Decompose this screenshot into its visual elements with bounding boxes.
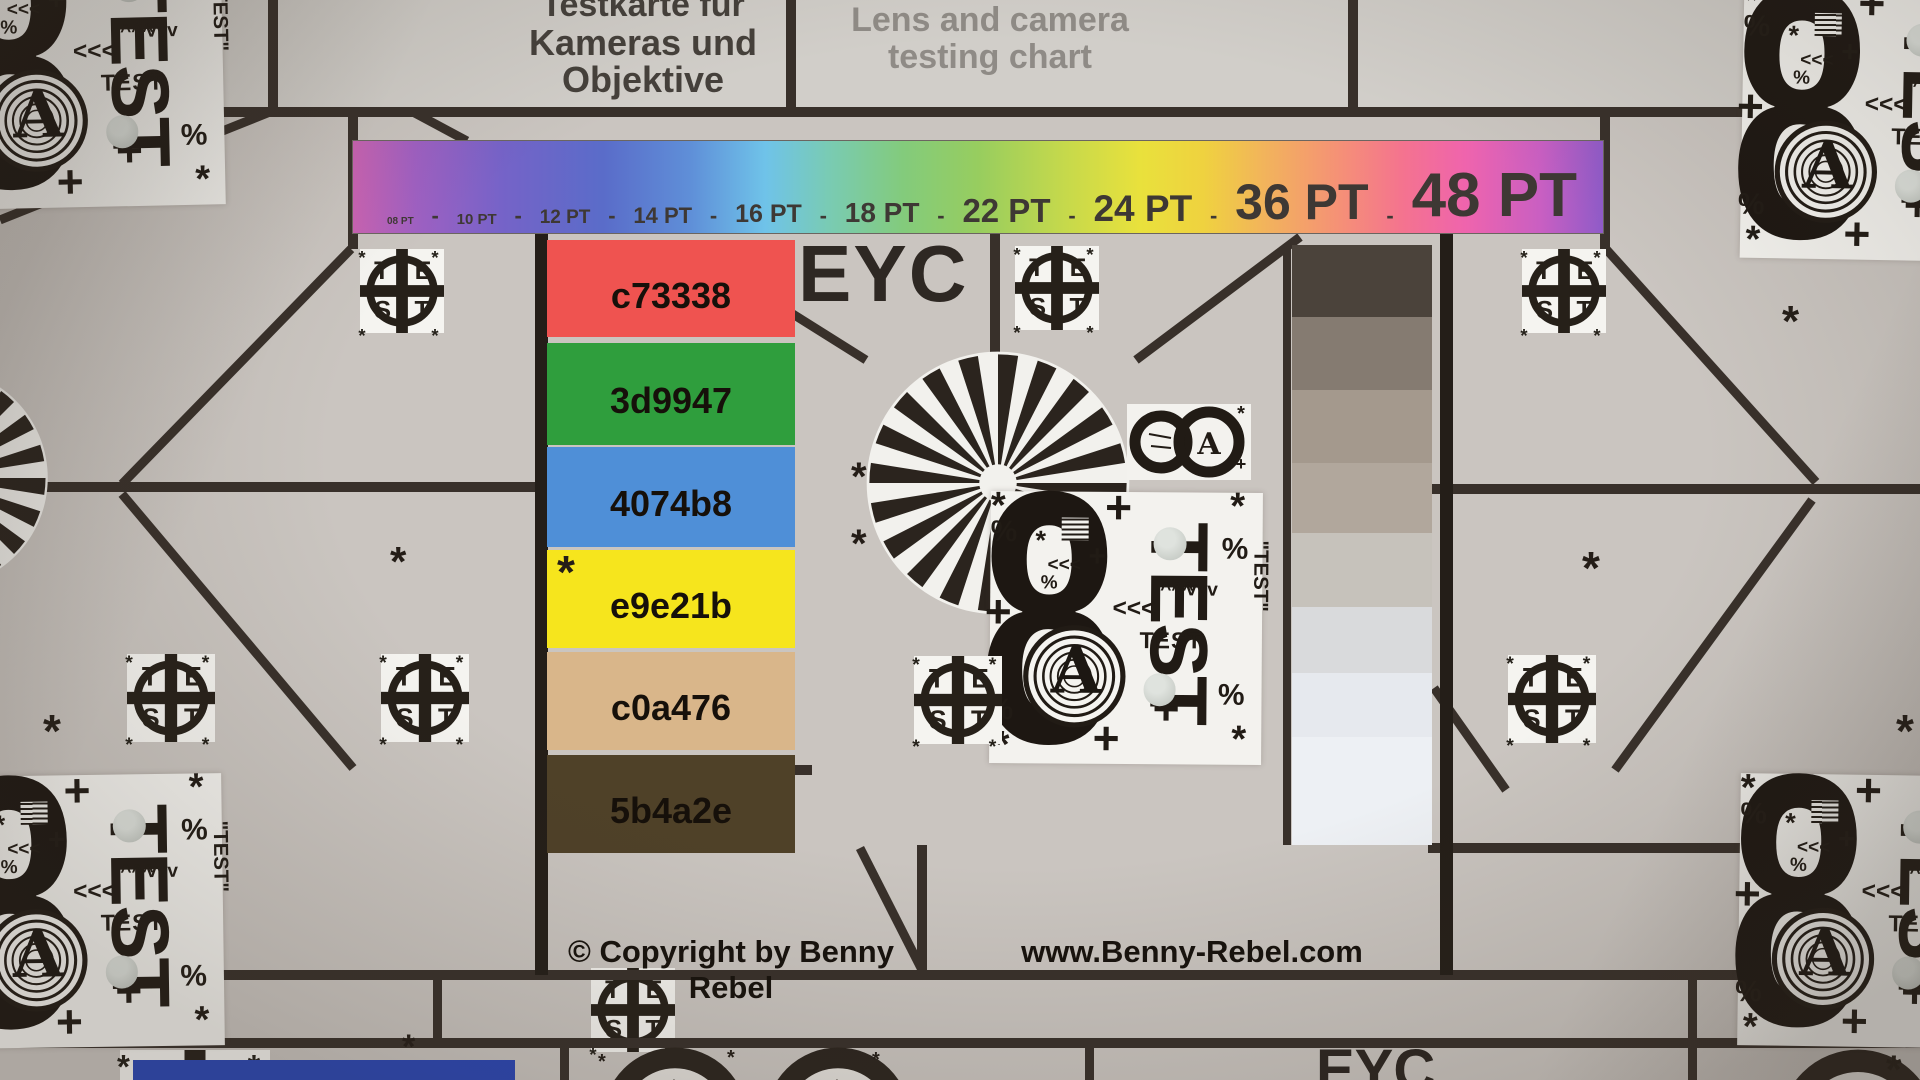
- tiny-hatch-lines: [1811, 800, 1839, 823]
- scatter-asterisk: *: [851, 524, 867, 564]
- test-circle-marker: T E S T ****: [127, 654, 215, 742]
- corner-asterisk: *: [188, 768, 203, 806]
- percent-sign: %: [180, 961, 207, 991]
- svg-text:T: T: [184, 703, 200, 733]
- resolution-target-8: 8 ATESTTEST"TEST"<<<*%+++++%%%%****<<<^^…: [1737, 773, 1920, 1049]
- grid-line-vertical: [1085, 1038, 1094, 1080]
- test-circle-marker: T E S T ****: [1015, 246, 1099, 330]
- plus-sign: +: [1105, 484, 1132, 530]
- small-test-word: TEST: [1139, 629, 1202, 653]
- scatter-asterisk: *: [1782, 300, 1799, 344]
- marker-corner-asterisk: *: [456, 736, 464, 755]
- font-size-label: 10 PT: [457, 212, 497, 227]
- color-swatch: 3d9947: [547, 343, 795, 445]
- tiny-percent: %: [1041, 573, 1058, 592]
- marker-corner-asterisk: *: [379, 654, 387, 673]
- font-size-label: 22 PT: [962, 194, 1050, 227]
- svg-text:S: S: [1523, 704, 1541, 734]
- color-swatch: c73338: [547, 240, 795, 337]
- plus-sign: +: [1858, 0, 1886, 26]
- tiny-hatch-lines: [1061, 517, 1088, 540]
- marker-corner-asterisk: *: [125, 736, 133, 755]
- scatter-asterisk: *: [390, 541, 406, 583]
- marker-corner-asterisk: *: [1520, 249, 1527, 267]
- website-text: www.Benny-Rebel.com: [992, 934, 1392, 970]
- marker-corner-asterisk: *: [117, 1050, 130, 1080]
- corner-asterisk: *: [1744, 0, 1759, 20]
- small-test-word: TEST: [101, 71, 164, 95]
- svg-text:T: T: [1029, 254, 1045, 282]
- marker-corner-asterisk: *: [431, 327, 438, 345]
- font-size-label: 12 PT: [540, 208, 591, 227]
- marker-corner-asterisk: *: [1593, 327, 1600, 345]
- grid-line-horizontal: [0, 970, 1920, 980]
- percent-sign: %: [181, 815, 208, 845]
- svg-text:E: E: [1070, 254, 1087, 282]
- corner-asterisk: *: [1743, 1008, 1758, 1046]
- svg-text:E: E: [1565, 663, 1583, 693]
- gray-dot: [1154, 528, 1187, 561]
- siemens-star: [0, 366, 50, 590]
- grid-line-vertical: [786, 0, 796, 110]
- test-circle-marker: T E S T ****: [1508, 655, 1596, 743]
- left-arrows: <<<: [1861, 880, 1904, 905]
- copyright-text: © Copyright by Benny Rebel: [531, 934, 931, 1006]
- tiny-asterisk: *: [1785, 809, 1796, 836]
- grayscale-step: [1292, 463, 1432, 533]
- grid-line-horizontal: [0, 482, 540, 492]
- swatch-hex-label: 5b4a2e: [610, 776, 732, 832]
- marker-corner-asterisk: *: [358, 327, 365, 345]
- down-chevrons: vvv: [146, 862, 178, 881]
- percent-sign: %: [1222, 535, 1249, 565]
- percent-sign: %: [1218, 680, 1245, 710]
- tiny-percent: %: [0, 18, 17, 37]
- marker-corner-asterisk: *: [912, 656, 920, 675]
- svg-text:S: S: [1029, 294, 1046, 322]
- font-size-label: 48 PT: [1412, 165, 1577, 227]
- gray-dot: [105, 955, 138, 988]
- gray-dot: [1894, 169, 1920, 202]
- color-swatch: 4074b8: [547, 447, 795, 547]
- tiny-hatch-lines: [20, 801, 48, 824]
- gray-dot: [1892, 956, 1920, 989]
- svg-text:A: A: [1196, 427, 1221, 462]
- plus-sign: +: [1843, 210, 1871, 257]
- scatter-asterisk: *: [1886, 1050, 1902, 1080]
- svg-text:S: S: [929, 705, 947, 735]
- left-arrows: <<<: [1865, 92, 1908, 117]
- tiny-plus: +: [48, 826, 66, 856]
- svg-text:T: T: [414, 297, 430, 325]
- corner-asterisk: *: [194, 1002, 209, 1040]
- font-size-separator: -: [820, 205, 827, 227]
- test-circle-marker: T E S T ****: [914, 656, 1002, 744]
- swatch-hex-label: 3d9947: [610, 366, 732, 422]
- tiny-percent: %: [1793, 68, 1810, 87]
- font-size-separator: -: [515, 205, 522, 227]
- eyc-label-partial: EYC: [1316, 1037, 1435, 1080]
- percent-sign: %: [180, 0, 207, 5]
- font-size-label: 36 PT: [1235, 177, 1368, 227]
- scatter-asterisk: *: [598, 1052, 606, 1072]
- test-circle-marker: T E S T ****: [381, 654, 469, 742]
- svg-text:T: T: [438, 703, 454, 733]
- grid-line-horizontal: [0, 107, 1920, 117]
- font-size-separator: -: [1210, 205, 1217, 227]
- eyc-label: EYC: [798, 228, 969, 320]
- scatter-asterisk: *: [402, 1030, 415, 1064]
- grayscale-step: [1292, 737, 1432, 845]
- ring-letter-a: A: [1799, 918, 1851, 990]
- font-size-separator: -: [937, 205, 944, 227]
- down-chevrons: vvv: [1186, 581, 1218, 600]
- grid-line-vertical: [1283, 245, 1291, 845]
- plus-sign: +: [1092, 715, 1119, 761]
- test-circle-marker: T E S T ****: [1522, 249, 1606, 333]
- tiny-plus: +: [1838, 825, 1856, 855]
- grayscale-step: [1292, 533, 1432, 607]
- marker-corner-asterisk: *: [1506, 655, 1514, 674]
- svg-text:T: T: [1576, 297, 1592, 325]
- ring-letter-a: A: [12, 919, 64, 991]
- plus-sign: +: [1733, 870, 1761, 917]
- font-size-separator: -: [432, 205, 439, 227]
- tiny-percent: %: [1, 858, 18, 877]
- up-chevrons: ^^^: [1912, 77, 1920, 97]
- grid-line-vertical: [1688, 975, 1697, 1080]
- svg-text:S: S: [374, 297, 391, 325]
- gray-dot: [113, 810, 146, 843]
- svg-text:S: S: [1536, 297, 1553, 325]
- svg-text:E: E: [415, 257, 432, 285]
- plus-sign: +: [56, 998, 84, 1045]
- plus-sign: +: [985, 588, 1012, 634]
- plus-sign: +: [1855, 767, 1883, 814]
- svg-text:T: T: [374, 257, 390, 285]
- grid-line-vertical: [560, 1038, 569, 1080]
- ring-letter-a: A: [1051, 636, 1102, 708]
- quoted-test-word: "TEST": [1250, 541, 1271, 613]
- marker-corner-asterisk: *: [125, 654, 133, 673]
- svg-text:T: T: [971, 705, 987, 735]
- quoted-test-word: "TEST": [209, 0, 231, 52]
- corner-asterisk: *: [1230, 487, 1245, 525]
- svg-text:T: T: [1523, 663, 1539, 693]
- font-size-gradient-bar: 08 PT-10 PT-12 PT-14 PT-16 PT-18 PT-22 P…: [352, 140, 1604, 234]
- marker-corner-asterisk: *: [1520, 327, 1527, 345]
- svg-text:E: E: [438, 662, 456, 692]
- grid-line-vertical: [990, 233, 1000, 357]
- grid-line-vertical: [1348, 0, 1358, 110]
- partial-ring-circle: [764, 1046, 912, 1080]
- svg-text:T: T: [1565, 704, 1581, 734]
- marker-corner-asterisk: *: [1086, 246, 1093, 264]
- left-arrows: <<<: [1112, 597, 1155, 622]
- resolution-target-8: 8 ATESTTEST"TEST"<<<*%+++++%%%%****<<<^^…: [0, 773, 225, 1049]
- marker-corner-asterisk: *: [431, 249, 438, 267]
- scatter-asterisk: *: [1896, 708, 1914, 754]
- font-size-label: 18 PT: [845, 199, 920, 227]
- grid-line-vertical: [433, 975, 442, 1042]
- percent-sign: %: [1738, 190, 1765, 220]
- resolution-target-8: 8 ATESTTEST"TEST"<<<*%+++++%%%%****<<<^^…: [1740, 0, 1920, 262]
- resolution-target-8: 8 ATESTTEST"TEST"<<<*%+++++%%%%****<<<^^…: [989, 491, 1263, 765]
- percent-sign: %: [1735, 977, 1762, 1007]
- svg-text:S: S: [142, 703, 160, 733]
- scatter-asterisk: *: [1582, 545, 1600, 591]
- small-test-word: TEST: [1888, 913, 1920, 937]
- color-swatch: e9e21b: [547, 550, 795, 648]
- plus-sign: +: [63, 767, 91, 814]
- down-chevrons: vvv: [146, 21, 178, 41]
- corner-asterisk: *: [1740, 769, 1755, 807]
- quoted-test-word: "TEST": [209, 821, 230, 893]
- marker-corner-asterisk: *: [1013, 246, 1020, 264]
- marker-corner-asterisk: *: [989, 738, 997, 757]
- marker-corner-asterisk: *: [1013, 324, 1020, 342]
- scatter-asterisk: *: [43, 708, 61, 754]
- color-swatch: 5b4a2e: [547, 755, 795, 853]
- svg-text:S: S: [396, 703, 414, 733]
- svg-text:T: T: [1536, 257, 1552, 285]
- svg-text:+: +: [1236, 454, 1247, 474]
- siemens-star-graphic: [0, 366, 50, 590]
- marker-corner-asterisk: *: [1086, 324, 1093, 342]
- marker-corner-asterisk: *: [202, 736, 210, 755]
- marker-corner-asterisk: *: [912, 738, 920, 757]
- marker-corner-asterisk: *: [379, 736, 387, 755]
- small-test-word: TEST: [1891, 126, 1920, 150]
- marker-corner-asterisk: *: [1583, 655, 1591, 674]
- ring-letter-a: A: [12, 80, 64, 153]
- tiny-asterisk: *: [1788, 22, 1799, 49]
- grayscale-step: [1292, 607, 1432, 673]
- grid-line-vertical: [1440, 233, 1453, 975]
- marker-corner-asterisk: *: [1583, 737, 1591, 756]
- camera-test-chart-photo: Testkarte für Kameras und Objektive Lens…: [0, 0, 1920, 1080]
- marker-corner-asterisk: *: [1506, 737, 1514, 756]
- svg-text:T: T: [142, 662, 158, 692]
- left-arrows: <<<: [73, 39, 116, 64]
- grayscale-step: [1292, 317, 1432, 390]
- tiny-percent: %: [1790, 855, 1807, 874]
- scatter-asterisk: *: [851, 457, 867, 497]
- gray-dot: [1143, 673, 1176, 706]
- corner-asterisk: *: [1231, 721, 1246, 759]
- plus-sign: +: [1736, 82, 1764, 129]
- resolution-target-8: 8 ATESTTEST"TEST"<<<*%+++++%%%%****<<<^^…: [0, 0, 226, 210]
- left-arrows: <<<: [73, 879, 116, 904]
- grayscale-step: [1292, 245, 1432, 317]
- svg-text:E: E: [1577, 257, 1594, 285]
- marker-corner-asterisk: *: [1593, 249, 1600, 267]
- svg-text:T: T: [929, 664, 945, 694]
- grid-line-horizontal: [0, 1038, 1920, 1048]
- tiny-plus: +: [1088, 542, 1106, 572]
- font-size-separator: -: [710, 205, 717, 227]
- font-size-separator: -: [1386, 205, 1393, 227]
- marker-corner-asterisk: *: [589, 1046, 596, 1064]
- swatch-hex-label: c0a476: [611, 673, 731, 729]
- swatch-hex-label: c73338: [611, 261, 731, 317]
- marker-corner-asterisk: *: [202, 654, 210, 673]
- tiny-asterisk: *: [1035, 527, 1046, 554]
- scatter-asterisk: *: [727, 1048, 735, 1068]
- marker-corner-asterisk: *: [989, 656, 997, 675]
- ring-circle-graphic: [764, 1046, 912, 1080]
- mini-8a-graphic: A * +: [1127, 404, 1251, 480]
- test-circle-marker: T E S T ****: [360, 249, 444, 333]
- font-size-separator: -: [1068, 205, 1075, 227]
- tiny-plus: +: [47, 0, 65, 16]
- plus-sign: +: [1841, 998, 1869, 1045]
- swatch-hex-label: e9e21b: [610, 571, 732, 627]
- mini-8a-target: A * +: [1127, 404, 1251, 480]
- corner-asterisk: *: [195, 161, 211, 199]
- svg-text:E: E: [971, 664, 989, 694]
- font-size-label: 16 PT: [735, 202, 802, 227]
- small-test-word: TEST: [101, 911, 164, 935]
- svg-text:T: T: [1069, 294, 1085, 322]
- swatch-hex-label: 4074b8: [610, 469, 732, 525]
- plus-sign: +: [56, 158, 84, 205]
- font-size-label: 14 PT: [633, 205, 692, 227]
- grayscale-step: [1292, 673, 1432, 737]
- ring-letter-a: A: [1802, 131, 1854, 204]
- svg-text:*: *: [1237, 404, 1245, 425]
- marker-corner-asterisk: *: [456, 654, 464, 673]
- tiny-plus: +: [1841, 38, 1859, 68]
- grid-line-horizontal: [1428, 484, 1920, 494]
- marker-corner-asterisk: *: [358, 249, 365, 267]
- corner-asterisk: *: [1745, 221, 1760, 259]
- corner-asterisk: *: [991, 487, 1006, 525]
- gray-dot: [106, 115, 139, 148]
- font-size-label: 08 PT: [387, 217, 414, 227]
- blue-bar: [133, 1060, 515, 1080]
- color-swatch: c0a476: [547, 652, 795, 750]
- up-chevrons: ^^^: [1909, 864, 1920, 884]
- svg-text:T: T: [396, 662, 412, 692]
- tiny-hatch-lines: [1814, 13, 1842, 37]
- font-size-separator: -: [608, 205, 615, 227]
- tiny-asterisk: *: [0, 811, 5, 838]
- scatter-asterisk: *: [872, 1050, 880, 1070]
- percent-sign: %: [181, 120, 208, 150]
- scatter-asterisk: *: [557, 549, 575, 595]
- svg-text:E: E: [184, 662, 202, 692]
- grayscale-step: [1292, 390, 1432, 463]
- grid-line-vertical: [268, 0, 278, 110]
- font-size-label: 24 PT: [1093, 190, 1192, 227]
